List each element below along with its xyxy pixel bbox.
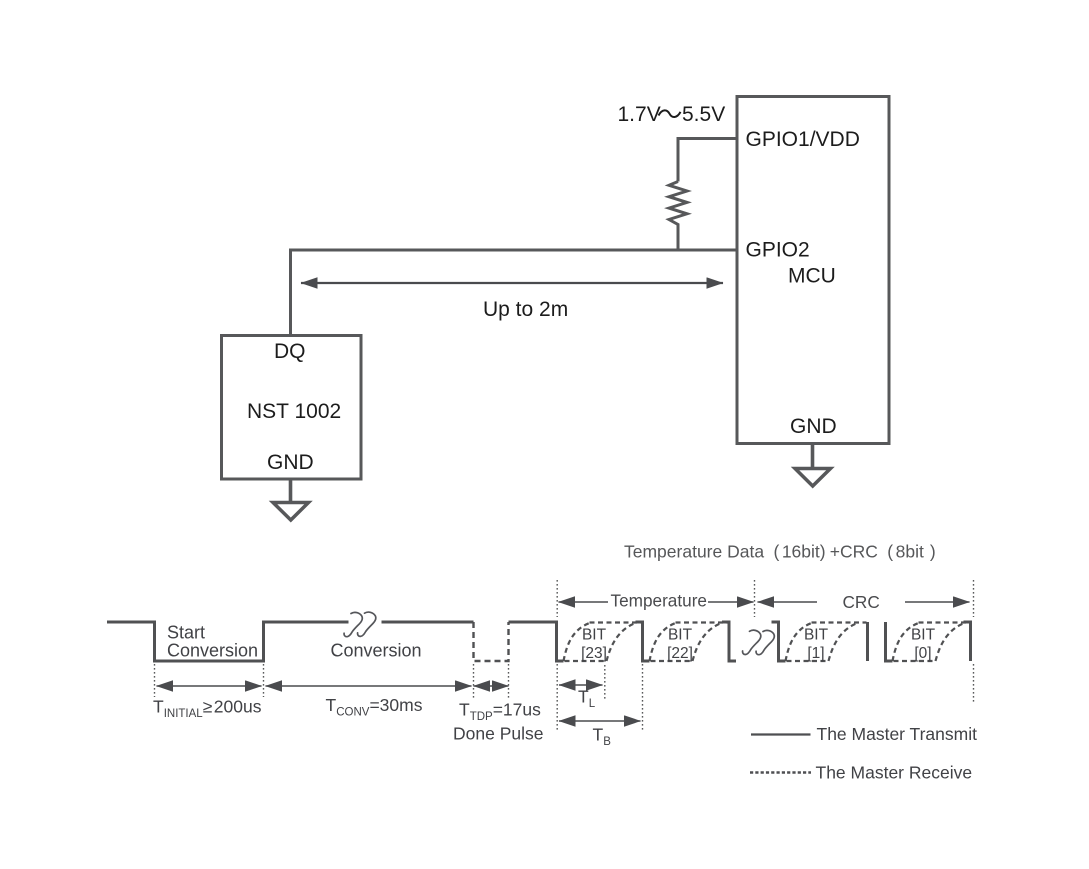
svg-text:DQ: DQ: [274, 340, 306, 363]
svg-text:The Master Receive: The Master Receive: [816, 763, 973, 783]
svg-text:NST 1002: NST 1002: [247, 400, 341, 423]
svg-text:GND: GND: [790, 415, 837, 438]
svg-text:5.5V: 5.5V: [682, 103, 725, 126]
svg-text:[0]: [0]: [914, 645, 931, 662]
svg-text:Temperature Data: Temperature Data: [624, 542, 764, 562]
svg-text:BIT: BIT: [911, 627, 936, 644]
svg-text:CRC: CRC: [843, 592, 880, 612]
svg-text:[22]: [22]: [667, 645, 693, 662]
svg-text:GPIO2: GPIO2: [746, 239, 810, 262]
svg-text:BIT: BIT: [582, 627, 607, 644]
svg-text:+CRC: +CRC: [830, 542, 878, 562]
svg-text:BIT: BIT: [668, 627, 693, 644]
svg-text:Start: Start: [167, 623, 205, 643]
svg-text:The Master Transmit: The Master Transmit: [817, 724, 978, 744]
svg-text:[23]: [23]: [581, 645, 607, 662]
svg-text:Temperature: Temperature: [611, 591, 708, 611]
svg-text:GND: GND: [267, 451, 314, 474]
svg-text:BIT: BIT: [804, 627, 829, 644]
svg-text:Conversion: Conversion: [167, 641, 258, 661]
svg-text:Conversion: Conversion: [331, 641, 422, 661]
svg-text:1.7V: 1.7V: [618, 103, 661, 126]
svg-text:Done Pulse: Done Pulse: [453, 724, 543, 744]
svg-text:Up to 2m: Up to 2m: [483, 298, 568, 321]
svg-text:MCU: MCU: [788, 265, 836, 288]
svg-text:(16bit): (16bit): [774, 542, 826, 562]
svg-text:[1]: [1]: [807, 645, 824, 662]
svg-text:GPIO1/VDD: GPIO1/VDD: [746, 128, 860, 151]
